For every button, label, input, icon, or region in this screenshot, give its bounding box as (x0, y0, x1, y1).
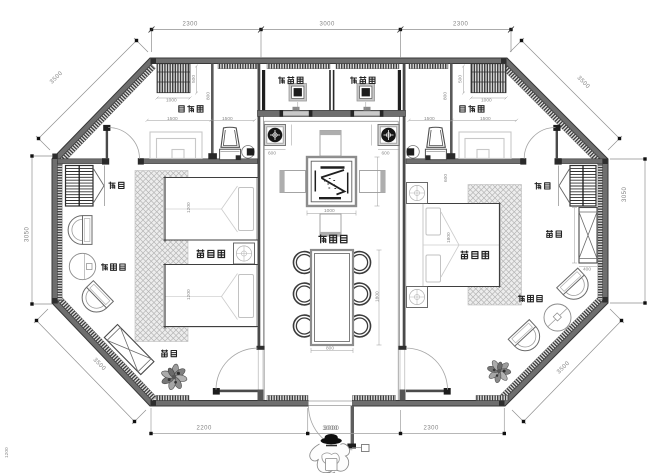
svg-text:1000: 1000 (481, 98, 492, 104)
svg-text:600: 600 (382, 151, 390, 157)
svg-text:400: 400 (583, 267, 591, 273)
svg-text:1200: 1200 (186, 289, 192, 300)
svg-text:800: 800 (443, 92, 449, 100)
svg-text:2200: 2200 (197, 426, 213, 432)
svg-text:3000: 3000 (324, 426, 340, 432)
svg-text:2300: 2300 (453, 22, 469, 28)
svg-text:500: 500 (458, 75, 464, 83)
svg-text:3000: 3000 (320, 22, 336, 28)
svg-text:3050: 3050 (25, 226, 31, 242)
svg-text:1500: 1500 (167, 116, 178, 122)
svg-text:1200: 1200 (186, 202, 192, 213)
svg-text:1000: 1000 (324, 208, 335, 214)
svg-text:800: 800 (206, 92, 212, 100)
svg-text:1500: 1500 (222, 116, 233, 122)
svg-text:1200: 1200 (4, 447, 10, 458)
svg-text:1800: 1800 (374, 291, 380, 302)
svg-text:1500: 1500 (424, 116, 435, 122)
svg-text:600: 600 (443, 174, 449, 182)
svg-text:2300: 2300 (424, 426, 440, 432)
svg-text:800: 800 (326, 346, 334, 352)
svg-text:3050: 3050 (622, 186, 628, 202)
svg-text:1800: 1800 (446, 232, 452, 243)
svg-text:2300: 2300 (183, 22, 199, 28)
svg-text:1000: 1000 (166, 98, 177, 104)
svg-text:500: 500 (191, 75, 197, 83)
svg-text:600: 600 (268, 151, 276, 157)
svg-text:1500: 1500 (480, 116, 491, 122)
